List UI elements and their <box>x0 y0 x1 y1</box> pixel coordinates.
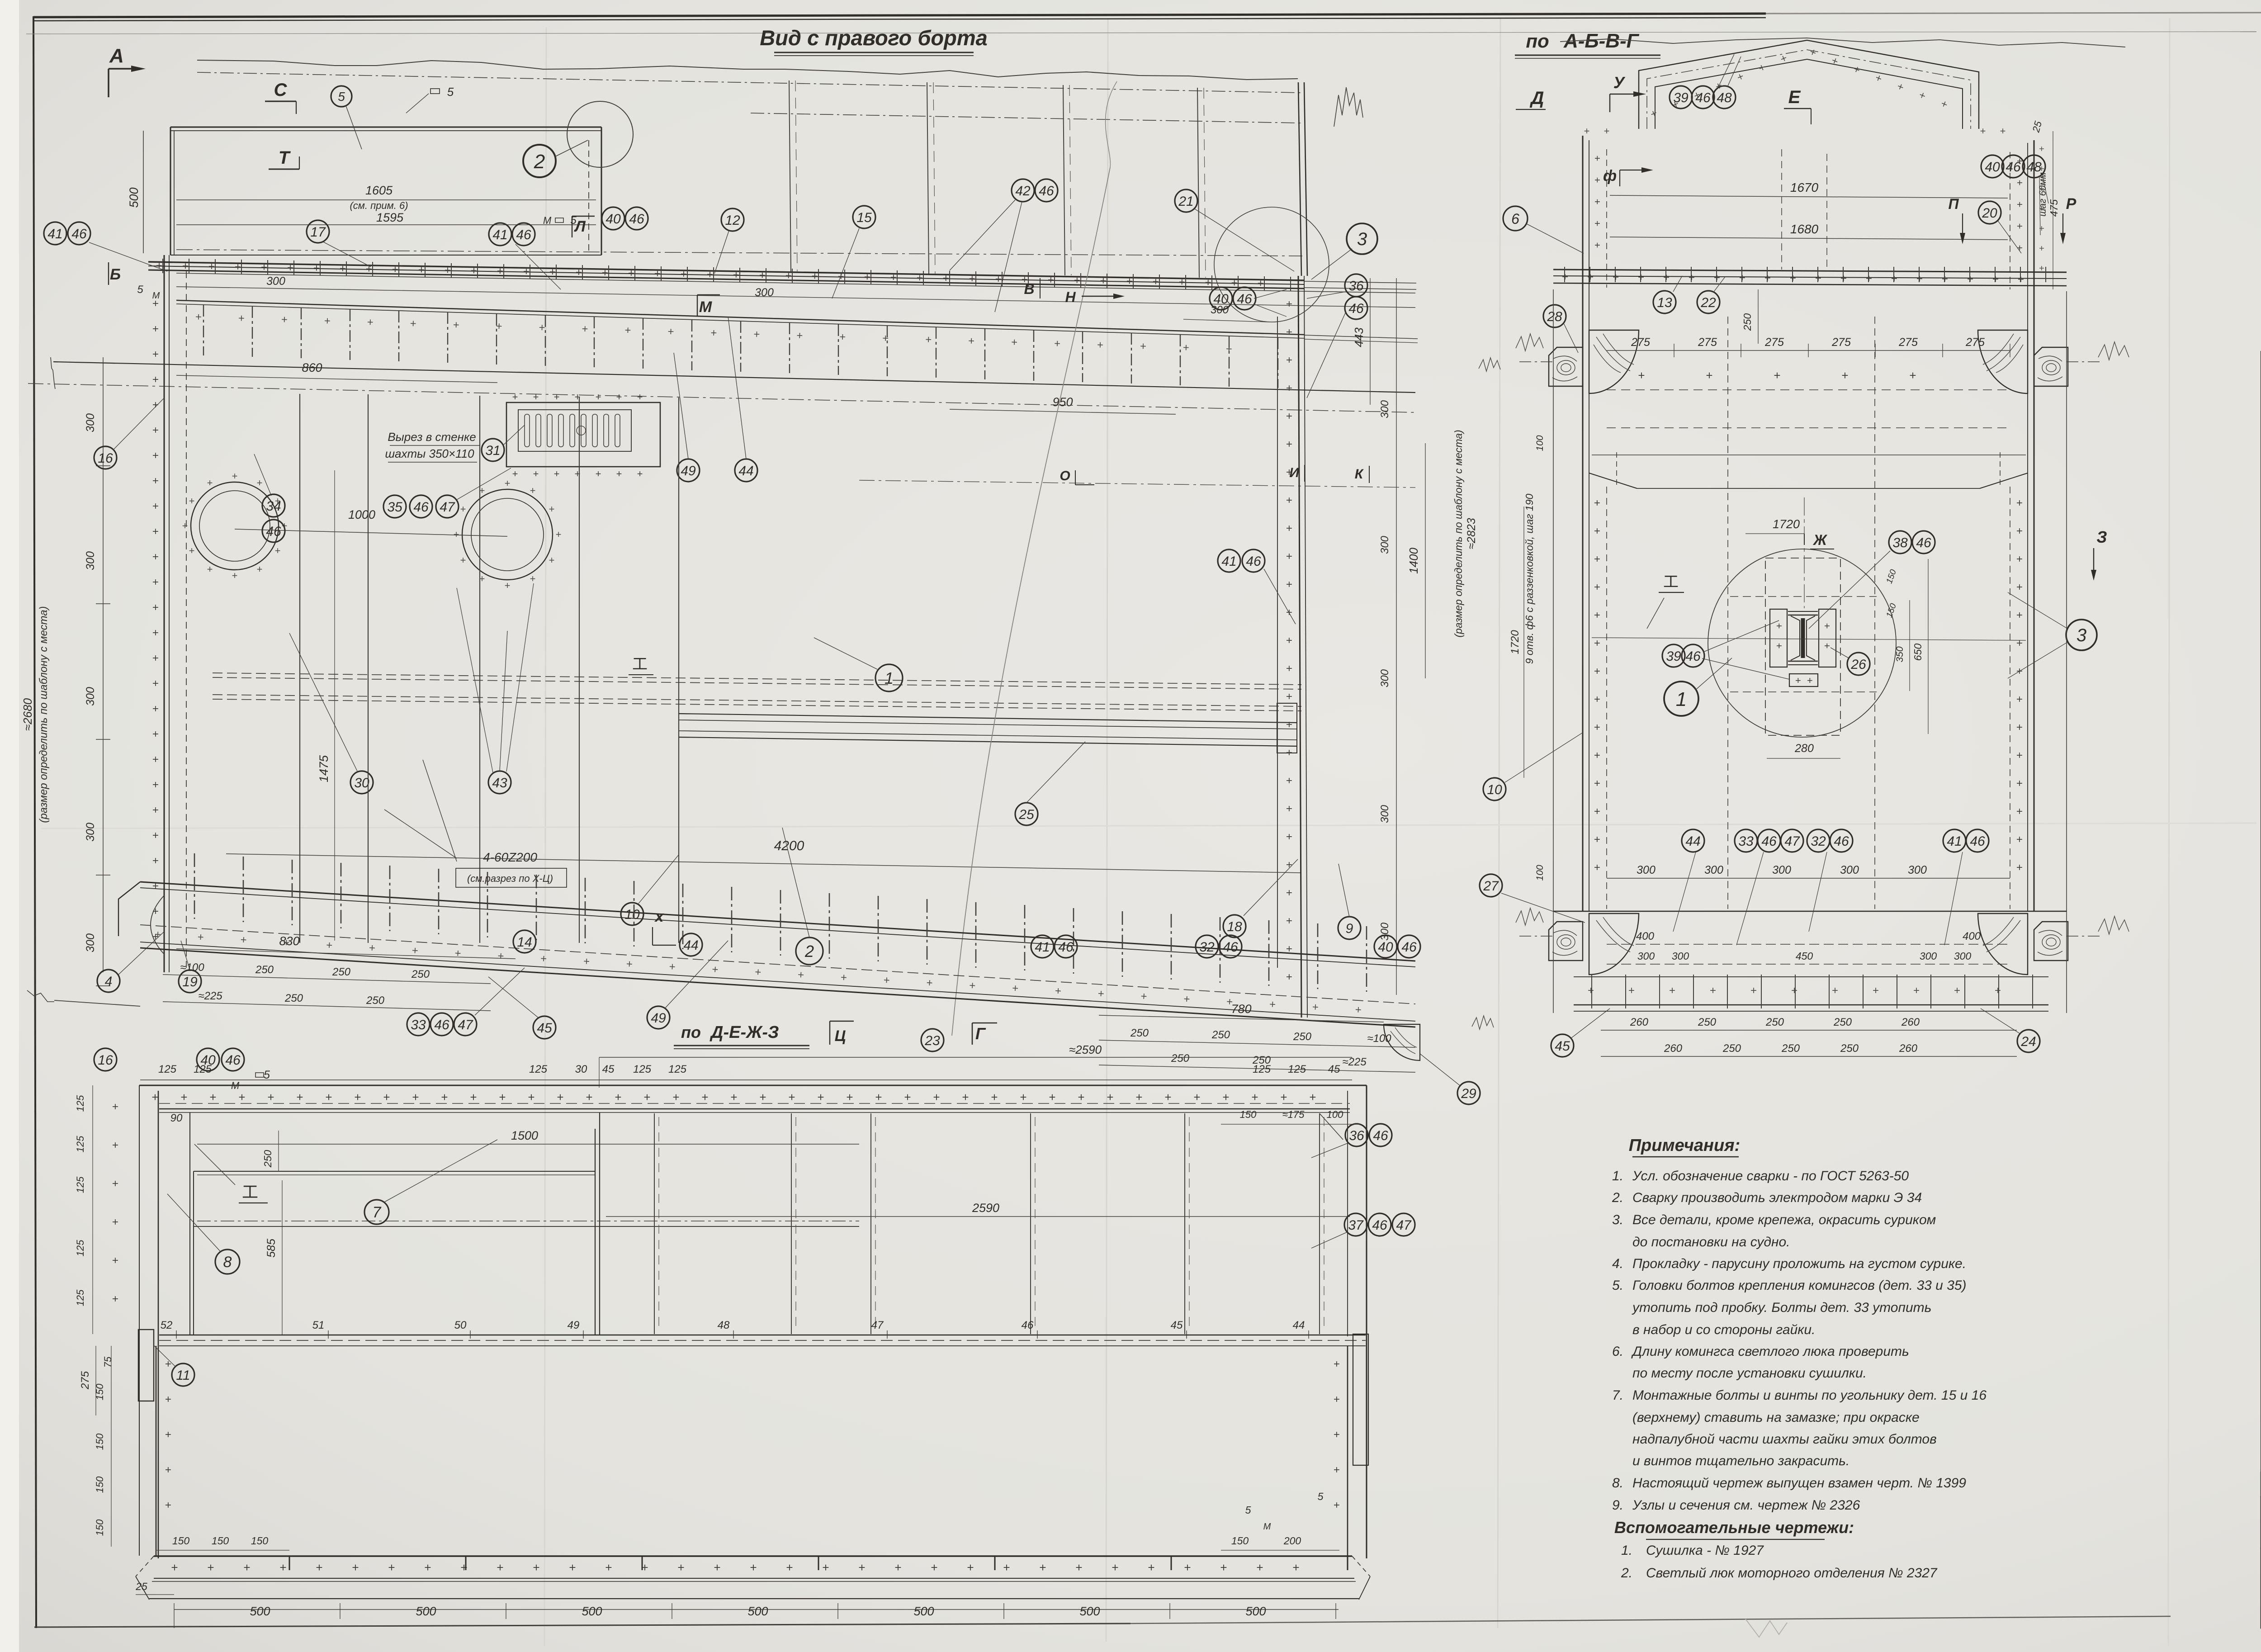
svg-text:+: + <box>1280 1090 1287 1104</box>
svg-text:46: 46 <box>1246 554 1261 569</box>
svg-text:+: + <box>1591 556 1603 562</box>
svg-text:+: + <box>497 1561 503 1574</box>
svg-text:300: 300 <box>84 551 97 570</box>
svg-text:+: + <box>453 319 459 331</box>
svg-text:+: + <box>1774 623 1785 629</box>
svg-text:+: + <box>1774 643 1785 649</box>
svg-text:2: 2 <box>804 942 814 961</box>
svg-text:27: 27 <box>1483 879 1499 894</box>
svg-text:125: 125 <box>75 1095 86 1112</box>
svg-text:+: + <box>1592 177 1603 183</box>
svg-text:≈2680: ≈2680 <box>21 698 34 731</box>
svg-text:38: 38 <box>1892 535 1908 550</box>
svg-text:2.: 2. <box>1612 1190 1623 1205</box>
svg-text:+: + <box>890 271 897 284</box>
svg-text:(см. прим. 6): (см. прим. 6) <box>350 200 408 211</box>
svg-text:+: + <box>149 908 161 914</box>
svg-text:49: 49 <box>568 1319 580 1331</box>
svg-text:275: 275 <box>1698 336 1717 349</box>
svg-text:300: 300 <box>1379 535 1391 554</box>
svg-text:Е: Е <box>1788 87 1801 107</box>
svg-text:+: + <box>1283 301 1295 307</box>
svg-text:+: + <box>182 520 188 531</box>
svg-text:+: + <box>991 1090 998 1104</box>
svg-text:+: + <box>1591 668 1603 674</box>
svg-text:+: + <box>207 477 213 488</box>
svg-text:250: 250 <box>411 968 430 980</box>
svg-text:+: + <box>1710 985 1716 997</box>
svg-text:И: И <box>1289 465 1300 480</box>
svg-text:260: 260 <box>1901 1016 1920 1028</box>
svg-text:+: + <box>2013 640 2025 646</box>
svg-text:100: 100 <box>1535 865 1545 880</box>
svg-text:5: 5 <box>264 1069 270 1081</box>
svg-text:3.: 3. <box>1612 1212 1623 1227</box>
svg-text:46: 46 <box>1223 940 1238 955</box>
svg-text:300: 300 <box>84 413 97 432</box>
svg-text:+: + <box>933 1090 940 1104</box>
svg-text:300: 300 <box>1840 864 1859 876</box>
svg-text:+: + <box>822 1561 829 1574</box>
svg-text:35: 35 <box>387 500 402 515</box>
svg-text:≈2823: ≈2823 <box>1465 518 1478 549</box>
svg-text:+: + <box>238 312 245 324</box>
svg-text:+: + <box>1980 125 1986 137</box>
svg-text:+: + <box>1909 369 1916 382</box>
svg-text:+: + <box>596 391 601 402</box>
svg-text:+: + <box>750 1561 757 1574</box>
svg-text:+: + <box>197 931 204 944</box>
svg-text:+: + <box>162 1502 174 1508</box>
svg-text:46: 46 <box>1970 834 1985 849</box>
svg-text:150: 150 <box>212 1535 229 1547</box>
svg-text:+: + <box>149 731 161 737</box>
svg-text:М: М <box>1263 1522 1271 1532</box>
svg-text:+: + <box>1256 1561 1263 1574</box>
svg-text:46: 46 <box>1058 940 1074 955</box>
svg-text:+: + <box>943 272 949 284</box>
svg-text:4200: 4200 <box>774 838 804 853</box>
svg-text:+: + <box>1591 752 1603 758</box>
svg-text:и винтов тщательно закрасить.: и винтов тщательно закрасить. <box>1632 1453 1849 1468</box>
svg-text:23: 23 <box>924 1033 940 1048</box>
svg-text:+: + <box>149 376 161 383</box>
svg-text:+: + <box>1750 985 1757 997</box>
svg-text:5: 5 <box>338 90 345 104</box>
svg-text:+: + <box>1078 1090 1084 1104</box>
svg-text:+: + <box>454 529 459 540</box>
svg-text:46: 46 <box>1373 1128 1388 1143</box>
svg-text:+: + <box>569 1561 576 1574</box>
svg-text:+: + <box>753 328 760 341</box>
svg-text:+: + <box>369 942 376 955</box>
svg-text:В: В <box>1024 281 1034 297</box>
svg-text:260: 260 <box>1630 1016 1649 1028</box>
svg-text:+: + <box>1832 985 1838 997</box>
svg-text:19: 19 <box>182 975 198 989</box>
svg-text:500: 500 <box>582 1605 602 1618</box>
svg-text:585: 585 <box>265 1239 278 1258</box>
svg-text:650: 650 <box>1912 644 1924 661</box>
svg-text:+: + <box>796 330 803 342</box>
svg-text:13: 13 <box>1657 295 1672 310</box>
svg-text:Т: Т <box>279 148 291 168</box>
svg-text:+: + <box>207 563 213 575</box>
svg-text:46: 46 <box>225 1053 241 1068</box>
svg-text:300: 300 <box>1211 304 1229 316</box>
svg-text:+: + <box>528 1090 535 1104</box>
svg-text:К: К <box>1355 467 1364 482</box>
svg-text:49: 49 <box>681 464 696 478</box>
svg-text:+: + <box>162 1396 174 1402</box>
svg-text:+: + <box>2014 180 2025 186</box>
svg-text:Прокладку - парусину проложить: Прокладку - парусину проложить на густом… <box>1632 1256 1966 1271</box>
svg-text:150: 150 <box>251 1535 269 1547</box>
svg-text:+: + <box>681 268 687 280</box>
svg-text:32: 32 <box>1811 834 1826 849</box>
svg-text:+: + <box>1591 836 1603 843</box>
svg-text:+: + <box>1054 337 1061 350</box>
svg-text:+: + <box>1107 1090 1113 1104</box>
svg-text:утопить под пробку. Болты дет.: утопить под пробку. Болты дет. 33 утопит… <box>1632 1300 1931 1315</box>
svg-text:+: + <box>195 311 202 323</box>
svg-text:+: + <box>1591 808 1603 814</box>
svg-text:+: + <box>917 272 923 284</box>
svg-text:+: + <box>1283 441 1295 447</box>
svg-text:200: 200 <box>1283 1535 1301 1547</box>
svg-text:工: 工 <box>242 1183 258 1201</box>
svg-text:+: + <box>279 1561 286 1574</box>
svg-text:+: + <box>2036 226 2046 231</box>
svg-text:+: + <box>1592 221 1603 227</box>
svg-text:х: х <box>654 908 665 925</box>
svg-text:+: + <box>1283 749 1295 756</box>
svg-text:+: + <box>1048 274 1054 286</box>
svg-text:(см.разрез по Х-Ц): (см.разрез по Х-Ц) <box>467 873 553 884</box>
svg-text:+: + <box>677 1561 684 1574</box>
svg-text:+: + <box>257 477 263 488</box>
svg-text:+: + <box>1638 369 1645 382</box>
svg-text:500: 500 <box>1079 1605 1100 1618</box>
svg-text:+: + <box>1140 340 1147 352</box>
svg-text:46: 46 <box>266 524 281 539</box>
svg-text:1400: 1400 <box>1407 548 1420 574</box>
svg-text:+: + <box>1591 612 1603 618</box>
svg-text:+: + <box>1135 1090 1142 1104</box>
svg-text:4: 4 <box>105 974 113 989</box>
svg-text:+: + <box>2013 696 2025 702</box>
svg-text:25: 25 <box>1018 807 1034 822</box>
svg-text:+: + <box>1097 339 1104 351</box>
svg-text:300: 300 <box>1954 950 1972 962</box>
svg-text:+: + <box>1283 637 1295 644</box>
svg-text:300: 300 <box>1704 864 1723 876</box>
svg-text:+: + <box>162 1361 174 1367</box>
svg-text:+: + <box>1330 1431 1343 1438</box>
svg-text:300: 300 <box>1772 864 1791 876</box>
svg-text:+: + <box>1097 988 1105 1000</box>
svg-text:1680: 1680 <box>1790 222 1819 236</box>
svg-text:+: + <box>354 1090 361 1104</box>
svg-text:Все детали, кроме крепежа, окр: Все детали, кроме крепежа, окрасить сури… <box>1632 1212 1936 1227</box>
svg-text:46: 46 <box>1372 1218 1387 1233</box>
svg-text:+: + <box>1012 982 1019 995</box>
svg-text:250: 250 <box>255 964 274 976</box>
svg-text:250: 250 <box>366 994 385 1007</box>
svg-text:+: + <box>2000 125 2006 137</box>
svg-text:+: + <box>1152 275 1159 288</box>
svg-text:+: + <box>1283 946 1295 952</box>
svg-text:+: + <box>1591 640 1603 646</box>
svg-text:+: + <box>533 468 539 479</box>
svg-text:10: 10 <box>624 907 640 922</box>
svg-text:+: + <box>1283 553 1295 559</box>
svg-text:Головки болтов крепления комин: Головки болтов крепления комингсов (дет.… <box>1632 1278 1967 1293</box>
svg-text:+: + <box>1791 985 1797 997</box>
svg-text:1: 1 <box>885 669 894 687</box>
svg-text:1720: 1720 <box>1509 630 1521 654</box>
svg-text:125: 125 <box>1253 1063 1271 1075</box>
svg-text:46: 46 <box>1237 292 1252 307</box>
svg-text:+: + <box>243 1561 250 1574</box>
svg-text:+: + <box>733 269 739 281</box>
svg-text:+: + <box>1807 675 1813 686</box>
svg-text:+: + <box>149 300 161 307</box>
svg-text:+: + <box>615 1090 621 1104</box>
svg-text:+: + <box>1283 497 1295 503</box>
svg-text:46: 46 <box>2006 160 2021 175</box>
svg-text:+: + <box>2013 724 2025 730</box>
svg-text:+: + <box>602 267 608 279</box>
svg-text:46: 46 <box>1022 1319 1034 1331</box>
svg-text:+: + <box>1312 1001 1319 1013</box>
svg-text:+: + <box>759 270 766 282</box>
svg-text:45: 45 <box>1171 1319 1183 1331</box>
svg-text:+: + <box>926 977 933 989</box>
svg-text:+: + <box>240 934 247 947</box>
svg-text:+: + <box>149 579 161 585</box>
svg-text:50: 50 <box>454 1319 467 1331</box>
svg-text:400: 400 <box>1636 930 1655 942</box>
svg-text:46: 46 <box>1401 940 1417 955</box>
svg-text:300: 300 <box>755 286 774 299</box>
svg-text:+: + <box>149 857 161 864</box>
svg-text:+: + <box>1283 329 1295 335</box>
svg-text:+: + <box>540 952 547 965</box>
svg-text:125: 125 <box>75 1240 86 1256</box>
svg-text:+: + <box>1183 993 1191 1006</box>
svg-text:275: 275 <box>1965 336 1985 349</box>
svg-text:+: + <box>1591 696 1603 702</box>
svg-text:+: + <box>995 273 1002 285</box>
svg-text:20: 20 <box>1982 206 1997 221</box>
svg-text:+: + <box>968 335 975 347</box>
svg-text:9.: 9. <box>1612 1498 1623 1513</box>
svg-text:5.: 5. <box>1612 1278 1623 1293</box>
svg-text:46: 46 <box>413 500 429 515</box>
svg-text:29: 29 <box>1461 1086 1476 1101</box>
svg-text:+: + <box>149 554 161 560</box>
svg-text:+: + <box>109 1257 121 1264</box>
svg-text:+: + <box>1591 864 1603 871</box>
svg-text:Г: Г <box>975 1024 986 1043</box>
svg-text:П: П <box>1948 196 1959 212</box>
svg-text:+: + <box>267 1090 274 1104</box>
svg-text:+: + <box>441 1090 448 1104</box>
svg-text:+: + <box>156 260 162 272</box>
svg-text:+: + <box>109 1219 121 1225</box>
svg-text:+: + <box>1222 1090 1229 1104</box>
svg-text:+: + <box>1995 985 2001 997</box>
svg-text:+: + <box>180 1090 187 1104</box>
svg-text:+: + <box>549 554 555 566</box>
svg-text:+: + <box>1283 385 1295 391</box>
svg-text:475: 475 <box>2048 199 2060 217</box>
svg-text:по: по <box>681 1023 701 1041</box>
svg-text:150: 150 <box>94 1476 105 1493</box>
svg-text:46: 46 <box>1916 535 1931 550</box>
svg-text:8: 8 <box>223 1254 232 1271</box>
svg-text:надпалубной части шахты гайки: надпалубной части шахты гайки этих болто… <box>1632 1432 1937 1447</box>
svg-text:+: + <box>1591 724 1603 730</box>
svg-text:+: + <box>182 260 189 272</box>
svg-text:125: 125 <box>75 1289 86 1306</box>
svg-text:+: + <box>1592 242 1603 248</box>
svg-text:+: + <box>1283 862 1295 868</box>
svg-text:+: + <box>788 1090 795 1104</box>
svg-text:+: + <box>754 966 762 979</box>
svg-text:+: + <box>1283 890 1295 896</box>
svg-text:7: 7 <box>373 1204 382 1221</box>
svg-text:+: + <box>1283 357 1295 363</box>
svg-text:5: 5 <box>570 214 577 227</box>
svg-text:+: + <box>410 317 416 330</box>
svg-text:≈175: ≈175 <box>1282 1109 1305 1120</box>
svg-text:+: + <box>388 1561 395 1574</box>
svg-text:+: + <box>1100 275 1106 287</box>
svg-text:+: + <box>497 950 505 962</box>
svg-text:+: + <box>109 1103 121 1110</box>
svg-text:40: 40 <box>1985 160 2000 175</box>
svg-text:+: + <box>1112 1561 1118 1574</box>
svg-text:44: 44 <box>683 938 698 953</box>
svg-text:ф: ф <box>1603 167 1617 185</box>
svg-text:4-60Z200: 4-60Z200 <box>483 850 537 864</box>
svg-text:+: + <box>628 267 634 279</box>
svg-text:+: + <box>1039 1561 1046 1574</box>
svg-text:+: + <box>162 1431 174 1438</box>
svg-text:275: 275 <box>79 1371 91 1390</box>
svg-text:48: 48 <box>1717 90 1732 105</box>
svg-text:1720: 1720 <box>1773 517 1800 531</box>
svg-text:+: + <box>712 963 719 976</box>
svg-text:≈225: ≈225 <box>1342 1056 1367 1068</box>
svg-text:+: + <box>470 1090 477 1104</box>
svg-text:45: 45 <box>1555 1039 1570 1054</box>
svg-text:+: + <box>296 1090 303 1104</box>
svg-text:+: + <box>1140 990 1148 1003</box>
svg-text:17: 17 <box>310 225 326 240</box>
svg-text:+: + <box>1257 277 1263 289</box>
svg-text:400: 400 <box>1963 930 1981 942</box>
svg-text:100: 100 <box>1327 1109 1343 1120</box>
svg-text:6: 6 <box>1511 211 1519 227</box>
svg-text:36: 36 <box>1349 1128 1364 1143</box>
svg-text:+: + <box>2013 584 2025 590</box>
svg-text:40: 40 <box>1378 940 1393 955</box>
svg-text:16: 16 <box>98 451 113 466</box>
svg-text:+: + <box>1164 1090 1171 1104</box>
svg-text:46: 46 <box>1348 301 1364 316</box>
svg-text:+: + <box>894 1561 901 1574</box>
svg-text:12: 12 <box>725 213 740 228</box>
svg-text:250: 250 <box>1293 1031 1312 1043</box>
svg-text:125: 125 <box>75 1176 86 1193</box>
svg-text:1.: 1. <box>1621 1543 1632 1558</box>
svg-text:250: 250 <box>332 966 351 978</box>
svg-text:+: + <box>1020 1090 1026 1104</box>
svg-text:16: 16 <box>98 1053 113 1068</box>
svg-text:+: + <box>701 1090 708 1104</box>
svg-text:+: + <box>2036 166 2046 171</box>
svg-text:+: + <box>1283 525 1295 531</box>
svg-text:30: 30 <box>354 776 369 790</box>
svg-text:40: 40 <box>605 212 621 227</box>
svg-text:+: + <box>605 1561 612 1574</box>
svg-text:+: + <box>714 1561 720 1574</box>
svg-text:300: 300 <box>266 275 285 288</box>
svg-text:125: 125 <box>75 1136 86 1152</box>
svg-text:+: + <box>324 315 331 327</box>
svg-text:125: 125 <box>194 1063 212 1075</box>
svg-text:31: 31 <box>485 443 500 458</box>
svg-text:2: 2 <box>534 151 545 173</box>
svg-text:47: 47 <box>440 500 455 515</box>
svg-text:275: 275 <box>1764 336 1784 349</box>
svg-text:+: + <box>1283 974 1295 980</box>
svg-text:42: 42 <box>1015 184 1031 199</box>
svg-text:+: + <box>730 1090 737 1104</box>
svg-text:+: + <box>539 322 545 334</box>
svg-text:+: + <box>499 1090 506 1104</box>
svg-text:+: + <box>1584 125 1590 137</box>
svg-text:32: 32 <box>1199 940 1215 955</box>
svg-text:+: + <box>556 529 562 540</box>
svg-text:Д: Д <box>1530 88 1544 108</box>
svg-text:Узлы и сечения см. чертеж №: Узлы и сечения см. чертеж № 2326 <box>1632 1498 1860 1513</box>
svg-text:3: 3 <box>2077 625 2086 645</box>
svg-text:+: + <box>1330 1361 1343 1367</box>
svg-text:15: 15 <box>856 210 872 225</box>
svg-text:+: + <box>162 1467 174 1473</box>
svg-text:+: + <box>1330 1396 1343 1402</box>
svg-text:+: + <box>797 969 804 981</box>
svg-text:+: + <box>2013 556 2025 562</box>
svg-text:+: + <box>207 1561 214 1574</box>
svg-text:1670: 1670 <box>1790 180 1819 194</box>
svg-text:+: + <box>445 264 451 276</box>
svg-text:(размер определить по шаблону: (размер определить по шаблону с места) <box>38 606 50 823</box>
svg-text:+: + <box>1309 1090 1316 1104</box>
svg-text:+: + <box>209 1090 216 1104</box>
svg-text:+: + <box>530 573 536 584</box>
svg-text:250: 250 <box>1781 1042 1800 1055</box>
svg-text:250: 250 <box>1211 1029 1230 1041</box>
svg-text:44: 44 <box>738 464 753 478</box>
svg-text:100: 100 <box>1535 435 1545 451</box>
svg-text:+: + <box>171 1561 178 1574</box>
svg-text:+: + <box>549 266 556 278</box>
